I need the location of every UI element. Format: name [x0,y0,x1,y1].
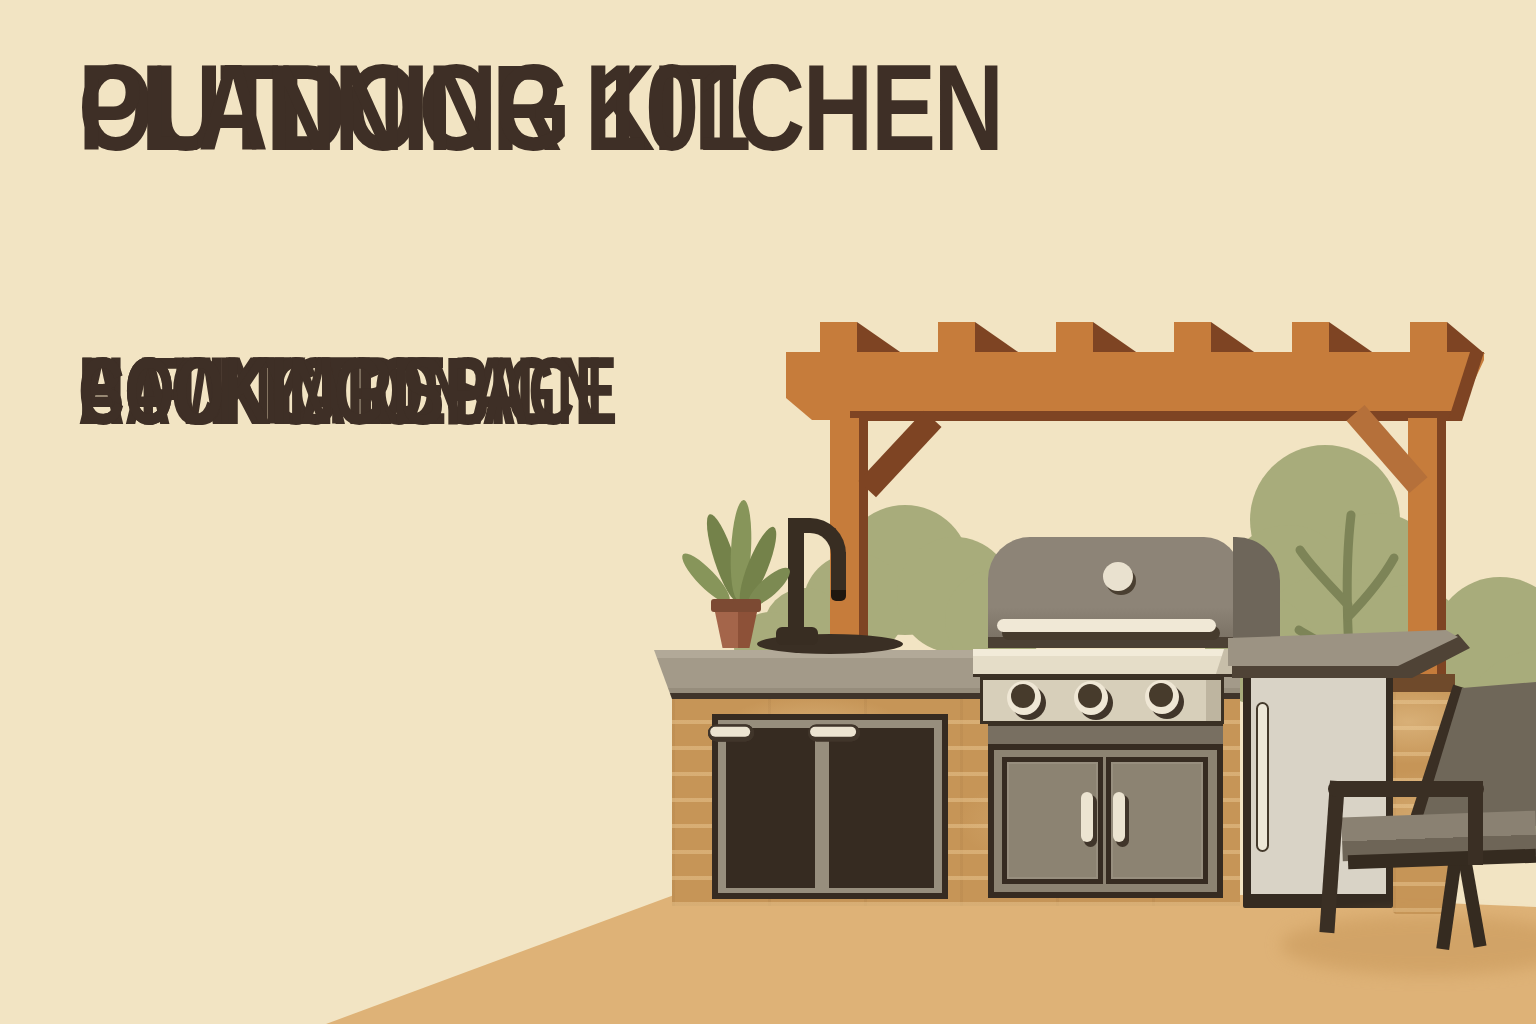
chair-arm-post [1468,781,1483,865]
chair-leg-front-left [1319,780,1345,933]
chair-leg-back-left [1436,857,1462,950]
lounge-chair [0,0,1536,1024]
chair-armrest [1328,781,1484,797]
poster-canvas: OUTDOOR KITCHEN PLANNING 101 HOW TO DESI… [0,0,1536,1024]
chair-backrest [0,0,1536,1024]
chair-leg-back-right [1458,857,1486,948]
